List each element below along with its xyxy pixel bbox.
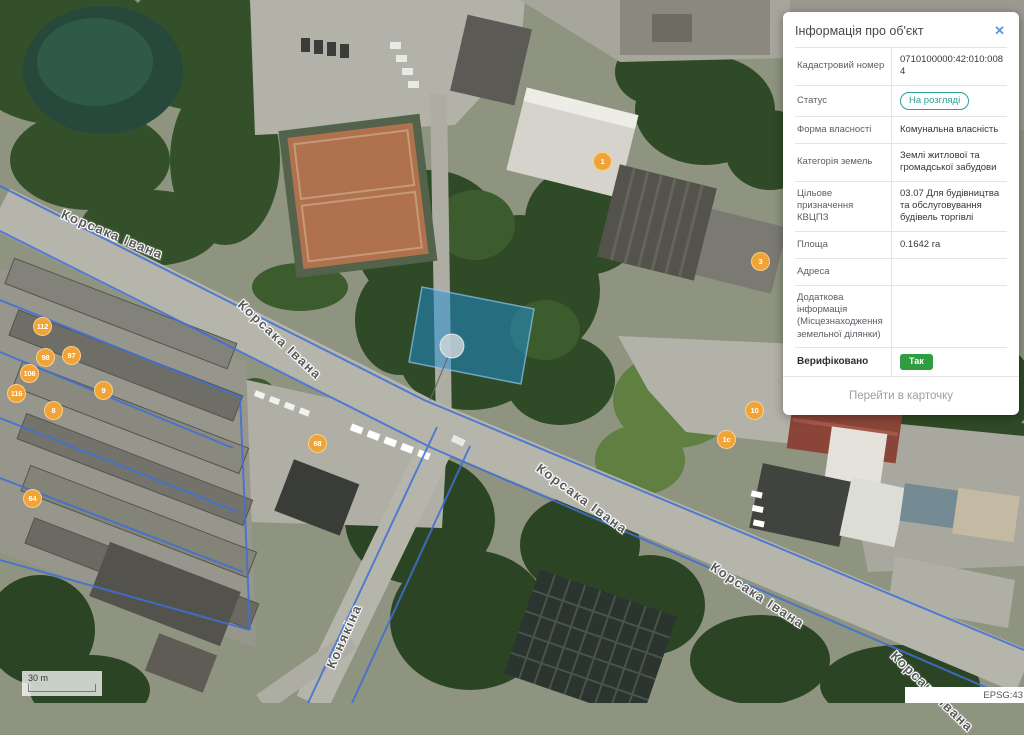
additional-info-value bbox=[892, 286, 1007, 347]
address-marker[interactable]: 106 bbox=[20, 364, 39, 383]
address-marker[interactable]: 98 bbox=[36, 348, 55, 367]
address-marker[interactable]: 1с bbox=[717, 430, 736, 449]
row-status: Статус На розгляді bbox=[795, 85, 1007, 116]
address-marker[interactable]: 10 bbox=[745, 401, 764, 420]
parcel-center-marker bbox=[440, 334, 464, 358]
row-land-category: Категорія земель Землі житлової та грома… bbox=[795, 143, 1007, 181]
address-marker[interactable]: 116 bbox=[7, 384, 26, 403]
scale-bar-bracket bbox=[28, 684, 96, 692]
address-marker[interactable]: 8 bbox=[44, 401, 63, 420]
row-address: Адреса bbox=[795, 258, 1007, 285]
address-value bbox=[892, 259, 1007, 285]
object-info-table: Кадастровий номер 0710100000:42:010:0084… bbox=[795, 47, 1007, 376]
panel-title: Інформація про об'єкт bbox=[795, 24, 924, 38]
row-verified: Верифіковано Так bbox=[795, 347, 1007, 376]
purpose-value: 03.07 Для будівництва та обслуговування … bbox=[892, 182, 1007, 231]
row-purpose: Цільове призначення КВЦПЗ 03.07 Для буді… bbox=[795, 181, 1007, 231]
row-label: Цільове призначення КВЦПЗ bbox=[795, 182, 892, 231]
row-label: Кадастровий номер bbox=[795, 48, 892, 85]
row-label: Форма власності bbox=[795, 117, 892, 143]
cadastral-number-value: 0710100000:42:010:0084 bbox=[892, 48, 1007, 85]
address-marker[interactable]: 68 bbox=[308, 434, 327, 453]
address-marker[interactable]: 112 bbox=[33, 317, 52, 336]
epsg-label: EPSG:43 bbox=[983, 690, 1023, 701]
scale-bar: 30 m bbox=[22, 671, 102, 696]
area-value: 0.1642 га bbox=[892, 232, 1007, 258]
address-marker[interactable]: 97 bbox=[62, 346, 81, 365]
object-info-panel: Інформація про об'єкт ✕ Кадастровий номе… bbox=[783, 12, 1019, 415]
go-to-card-link[interactable]: Перейти в карточку bbox=[849, 390, 953, 402]
row-label: Додаткова інформація (Місцезнаходження з… bbox=[795, 286, 892, 347]
close-icon[interactable]: ✕ bbox=[992, 22, 1007, 39]
land-category-value: Землі житлової та громадської забудови bbox=[892, 144, 1007, 181]
panel-footer: Перейти в карточку bbox=[783, 376, 1019, 415]
row-label: Площа bbox=[795, 232, 892, 258]
scale-label: 30 m bbox=[28, 673, 96, 683]
row-label: Верифіковано bbox=[795, 348, 892, 376]
row-area: Площа 0.1642 га bbox=[795, 231, 1007, 258]
epsg-attribution: EPSG:43 bbox=[905, 687, 1024, 703]
address-marker[interactable]: 64 bbox=[23, 489, 42, 508]
row-ownership-form: Форма власності Комунальна власність bbox=[795, 116, 1007, 143]
row-label: Категорія земель bbox=[795, 144, 892, 181]
ownership-value: Комунальна власність bbox=[892, 117, 1007, 143]
address-marker[interactable]: 1 bbox=[593, 152, 612, 171]
address-marker[interactable]: 9 bbox=[94, 381, 113, 400]
row-additional-info: Додаткова інформація (Місцезнаходження з… bbox=[795, 285, 1007, 347]
row-label: Статус bbox=[795, 86, 892, 116]
verified-badge: Так bbox=[900, 354, 933, 370]
address-marker[interactable]: 3 bbox=[751, 252, 770, 271]
status-badge: На розгляді bbox=[900, 92, 969, 110]
pond bbox=[23, 6, 183, 134]
row-cadastral-number: Кадастровий номер 0710100000:42:010:0084 bbox=[795, 47, 1007, 85]
tennis-courts bbox=[279, 114, 438, 278]
row-label: Адреса bbox=[795, 259, 892, 285]
